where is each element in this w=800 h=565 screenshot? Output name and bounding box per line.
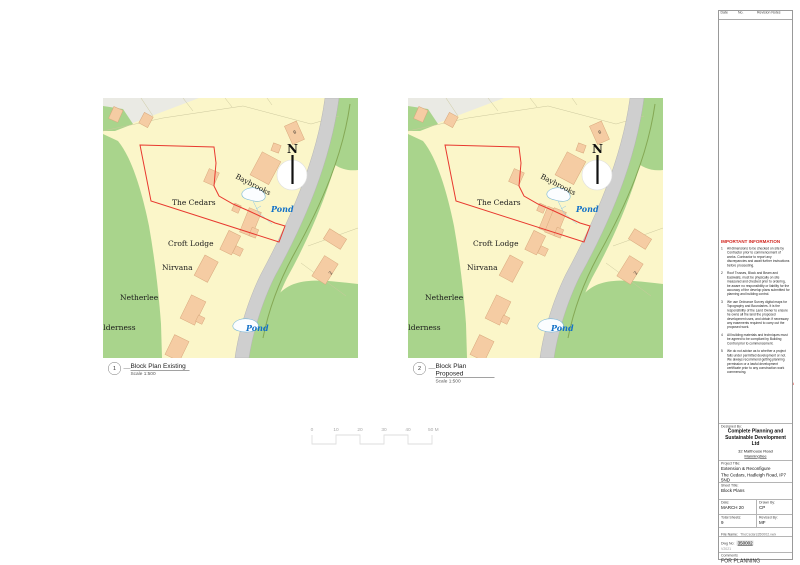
label-croft-lodge: Croft Lodge — [473, 239, 519, 248]
project-title-box: Project Title: Extension & Reconfigure T… — [719, 460, 792, 482]
label-pond-lower: Pond — [550, 323, 574, 333]
rev-col-notes: Revision Notes — [757, 11, 781, 15]
note-text: We use Ordnance Survey digital maps for … — [727, 300, 790, 330]
revision-table: Date No. Revision Notes — [719, 11, 792, 27]
label-nirvana: Nirvana — [467, 263, 498, 272]
scale-tick-40: 40 — [405, 427, 411, 433]
sheet-name: Block Plans — [721, 488, 790, 493]
caption-scale: Scale 1:500 — [131, 371, 190, 377]
revised-by-label: Revised By: — [759, 516, 791, 520]
important-information-heading: IMPORTANT INFORMATION — [721, 239, 790, 244]
title-block-spacer — [719, 27, 792, 236]
rev-col-date: Date — [721, 11, 728, 15]
label-the-cedars: The Cedars — [477, 198, 521, 207]
scale-tick-10: 10 — [333, 427, 339, 433]
caption-scale: Scale 1:500 — [436, 379, 495, 385]
project-address: The Cedars, Hadleigh Road, IP7 5ND — [721, 473, 790, 483]
scale-tick-20: 20 — [357, 427, 363, 433]
company-box: Designed By: Complete Planning and Susta… — [719, 423, 792, 460]
project-title-label: Project Title: — [721, 462, 790, 466]
sheet-title-box: Sheet Title: Block Plans — [719, 482, 792, 499]
caption-number-badge: 1 — [108, 362, 121, 375]
note-text: All building materials and techniques mu… — [727, 333, 790, 346]
label-pond-upper: Pond — [575, 204, 599, 214]
dwg-no-label: Dwg No: — [721, 542, 734, 546]
label-wilderness: ilderness — [408, 323, 441, 332]
rev-col-no: No. — [738, 11, 743, 15]
note-text: All dimensions to be checked on site by … — [727, 247, 790, 268]
total-sheets-value: 9 — [721, 520, 754, 525]
revised-by-value: MF — [759, 520, 791, 525]
scale-tick-50m: 50 M — [428, 427, 439, 433]
scale-bar: 0 10 20 30 40 50 M — [300, 422, 460, 450]
date-value: MARCH 20 — [721, 505, 754, 510]
date-drawnby-row: Date: MARCH 20 Drawn By: CP — [719, 499, 792, 514]
project-name: Extension & Reconfigure — [721, 466, 790, 471]
dwg-no-subtext: V2021 — [721, 548, 790, 552]
caption-title: Block Plan Proposed — [436, 362, 495, 378]
caption-tie-line — [124, 368, 131, 369]
file-name-row: File Name: TheCedars350002.vwx — [719, 527, 792, 536]
company-name-line1: Complete Planning and — [721, 429, 790, 435]
date-label: Date: — [721, 501, 754, 505]
caption-title: Block Plan Existing — [131, 362, 190, 371]
drawn-by-label: Drawn By: — [759, 501, 791, 505]
north-label: N — [592, 142, 603, 156]
comments-label: Comments — [721, 554, 790, 558]
caption-number: 2 — [418, 366, 421, 372]
caption-block-plan-proposed: 2 Block Plan Proposed Scale 1:500 — [413, 362, 495, 384]
title-block: Date No. Revision Notes IMPORTANT INFORM… — [718, 10, 793, 560]
sheet-title-label: Sheet Title: — [721, 484, 790, 488]
label-netherlee: Netherlee — [425, 293, 464, 302]
caption-number-badge: 2 — [413, 362, 426, 375]
company-name-line2: Sustainable Development Ltd — [721, 435, 790, 448]
label-nirvana: Nirvana — [162, 263, 193, 272]
scale-bar-rule — [312, 435, 432, 444]
label-netherlee: Netherlee — [120, 293, 159, 302]
caption-block-plan-existing: 1 Block Plan Existing Scale 1:500 — [108, 362, 190, 377]
important-information: IMPORTANT INFORMATION 1All dimensions to… — [719, 236, 792, 381]
total-sheets-label: Total Sheets: — [721, 516, 754, 520]
comments-row: Comments FOR PLANNING — [719, 552, 792, 565]
caption-number: 1 — [113, 366, 116, 372]
caption-tie-line — [429, 368, 436, 369]
label-the-cedars: The Cedars — [172, 198, 216, 207]
dwg-no-value: 350002 — [737, 541, 754, 546]
drawn-by-value: CP — [759, 505, 791, 510]
note-text: We do not advise as to whether a project… — [727, 350, 790, 375]
scale-tick-30: 30 — [381, 427, 387, 433]
logo-zone — [719, 381, 792, 423]
label-wilderness: ilderness — [103, 323, 136, 332]
label-pond-upper: Pond — [270, 204, 294, 214]
drawing-sheet: N Baybrooks The Cedars Croft Lodge Nirva… — [0, 0, 800, 565]
block-plan-map: N Baybrooks The Cedars Croft Lodge Nirva… — [103, 98, 358, 358]
block-plan-map: N Baybrooks The Cedars Croft Lodge Nirva… — [408, 98, 663, 358]
block-plan-proposed-map: N Baybrooks The Cedars Croft Lodge Nirva… — [408, 98, 663, 358]
scale-tick-0: 0 — [311, 427, 314, 433]
label-croft-lodge: Croft Lodge — [168, 239, 214, 248]
label-pond-lower: Pond — [245, 323, 269, 333]
dwg-no-row: Dwg No: 350002 V2021 — [719, 536, 792, 552]
for-planning-text: FOR PLANNING — [721, 559, 790, 565]
sheets-revisedby-row: Total Sheets: 9 Revised By: MF — [719, 514, 792, 527]
north-label: N — [287, 142, 298, 156]
note-text: Roof Trusses, Block and Beam and Easiwal… — [727, 272, 790, 297]
block-plan-existing-map: N Baybrooks The Cedars Croft Lodge Nirva… — [103, 98, 358, 358]
